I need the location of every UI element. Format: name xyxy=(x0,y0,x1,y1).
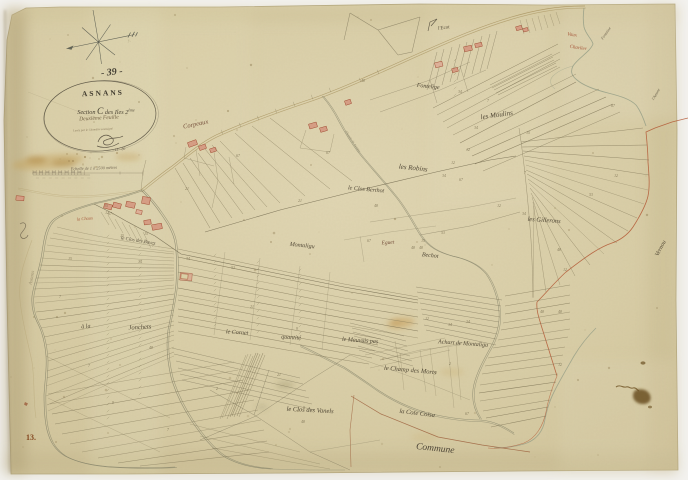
svg-text:Jonchets: Jonchets xyxy=(128,323,152,331)
svg-text:à la: à la xyxy=(81,324,91,331)
svg-text:12: 12 xyxy=(451,161,455,165)
svg-text:48: 48 xyxy=(361,79,365,83)
svg-text:48: 48 xyxy=(374,204,378,208)
svg-text:34: 34 xyxy=(458,90,462,94)
svg-text:34: 34 xyxy=(474,126,478,130)
svg-text:34: 34 xyxy=(442,174,446,178)
svg-text:9: 9 xyxy=(296,327,298,331)
svg-text:15: 15 xyxy=(421,239,425,243)
svg-text:15: 15 xyxy=(120,234,124,238)
svg-text:48: 48 xyxy=(301,420,305,424)
svg-text:15: 15 xyxy=(144,232,148,236)
svg-text:34: 34 xyxy=(138,260,142,264)
svg-text:ASNANS: ASNANS xyxy=(82,88,124,98)
svg-text:15: 15 xyxy=(104,204,108,208)
svg-text:15: 15 xyxy=(526,131,530,135)
svg-text:- 39 -: - 39 - xyxy=(100,66,123,79)
svg-text:48: 48 xyxy=(540,310,544,314)
svg-text:15: 15 xyxy=(68,257,72,261)
svg-text:21: 21 xyxy=(250,305,254,309)
svg-text:12: 12 xyxy=(497,204,501,208)
svg-text:53: 53 xyxy=(441,231,445,235)
svg-text:21: 21 xyxy=(298,199,302,203)
svg-text:48: 48 xyxy=(557,248,561,252)
svg-text:34: 34 xyxy=(448,323,452,327)
svg-text:13.: 13. xyxy=(26,433,36,442)
svg-text:12: 12 xyxy=(425,317,429,321)
svg-text:2: 2 xyxy=(449,362,451,366)
svg-text:53: 53 xyxy=(589,193,593,197)
svg-text:21: 21 xyxy=(277,373,281,377)
svg-text:34: 34 xyxy=(522,212,526,216)
svg-text:9: 9 xyxy=(435,371,437,375)
svg-text:34: 34 xyxy=(186,257,190,261)
svg-text:9: 9 xyxy=(112,401,114,405)
svg-text:21: 21 xyxy=(185,187,189,191)
svg-text:Eguet: Eguet xyxy=(380,240,395,247)
svg-text:2: 2 xyxy=(216,387,218,391)
svg-text:12: 12 xyxy=(614,174,618,178)
svg-text:12: 12 xyxy=(558,363,562,367)
svg-text:12: 12 xyxy=(563,268,567,272)
svg-text:48: 48 xyxy=(419,246,423,250)
svg-text:12: 12 xyxy=(466,148,470,152)
svg-text:9: 9 xyxy=(303,406,305,410)
svg-text:48: 48 xyxy=(558,310,562,314)
svg-text:48: 48 xyxy=(149,346,153,350)
svg-text:53: 53 xyxy=(231,266,235,270)
svg-text:34: 34 xyxy=(466,320,470,324)
svg-text:48: 48 xyxy=(411,246,415,250)
